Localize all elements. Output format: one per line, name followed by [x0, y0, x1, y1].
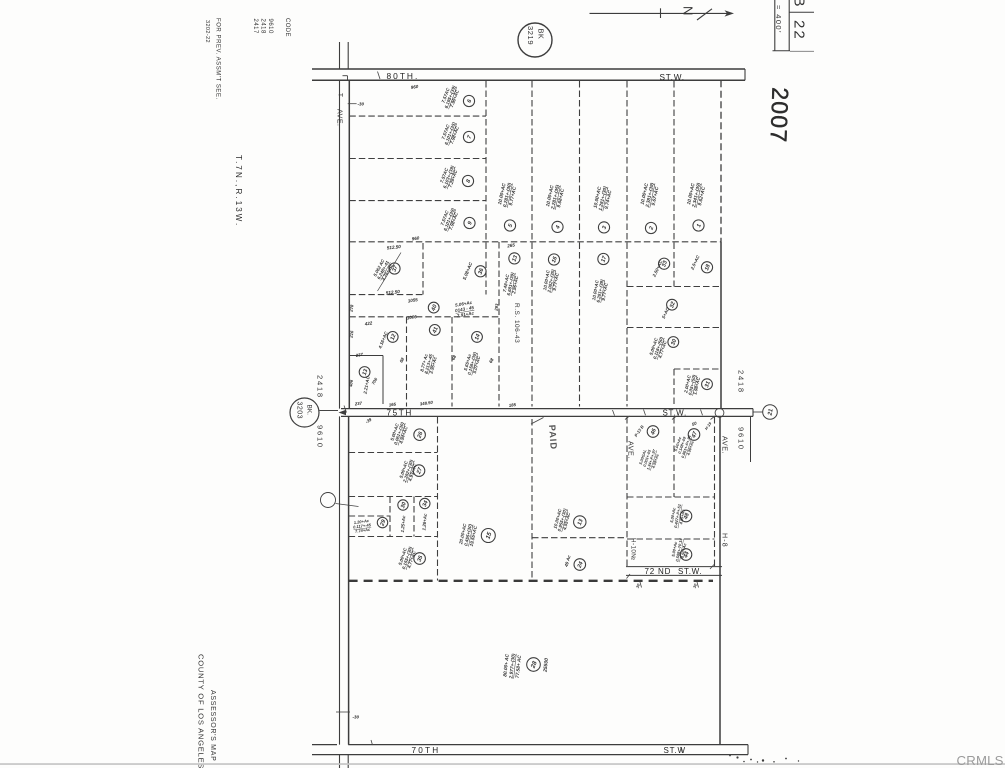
svg-text:T: T	[337, 93, 344, 97]
svg-text:H-10№: H-10№	[630, 538, 637, 560]
svg-text:BK: BK	[537, 29, 546, 40]
svg-text:T.7N.,R.13W.: T.7N.,R.13W.	[234, 155, 243, 227]
svg-text:2418: 2418	[737, 370, 746, 394]
svg-text:N: N	[681, 6, 696, 15]
svg-text:PAID: PAID	[547, 424, 559, 450]
svg-text:70TH: 70TH	[412, 746, 441, 755]
svg-text:COUNTY OF LOS ANGELES,: COUNTY OF LOS ANGELES,	[197, 654, 206, 768]
svg-text:75TH: 75TH	[387, 409, 413, 418]
svg-text:ST.W.: ST.W.	[660, 73, 685, 82]
svg-text:CRMLS: CRMLS	[957, 753, 1004, 768]
svg-text:-30: -30	[353, 715, 360, 720]
svg-text:ST.W: ST.W	[664, 746, 686, 755]
svg-text:9610: 9610	[316, 425, 325, 449]
svg-text:R.S. 106-43: R.S. 106-43	[513, 303, 520, 343]
svg-text:BK.: BK.	[306, 405, 313, 416]
svg-text:2418: 2418	[260, 19, 266, 35]
svg-text:2417: 2417	[252, 19, 258, 35]
svg-text:2007: 2007	[766, 87, 794, 144]
svg-text:72 ND: 72 ND	[645, 567, 672, 576]
svg-text:-30: -30	[358, 102, 365, 107]
svg-text:9610: 9610	[267, 19, 273, 35]
svg-text:ST.W.: ST.W.	[678, 567, 702, 576]
svg-text:B: B	[791, 0, 808, 7]
svg-text:80TH.: 80TH.	[387, 71, 420, 81]
svg-text:2418: 2418	[316, 375, 325, 399]
svg-text:H-8: H-8	[721, 533, 728, 548]
svg-text:9610: 9610	[737, 427, 746, 451]
svg-text:AVE.: AVE.	[627, 441, 636, 459]
svg-text:3203: 3203	[296, 402, 303, 420]
svg-text:AVE.: AVE.	[336, 109, 343, 126]
svg-text:3219: 3219	[526, 26, 535, 45]
svg-text:FOR PREV. ASSM'T SEE.: FOR PREV. ASSM'T SEE.	[215, 18, 221, 100]
svg-text:ASSESSOR'S MAP: ASSESSOR'S MAP	[209, 690, 216, 761]
svg-text:AVE.: AVE.	[721, 436, 730, 454]
svg-text:22: 22	[791, 20, 808, 41]
svg-text:3202-22: 3202-22	[204, 20, 210, 43]
svg-text:CODE: CODE	[284, 18, 290, 37]
svg-text:ST.W.: ST.W.	[663, 409, 687, 418]
